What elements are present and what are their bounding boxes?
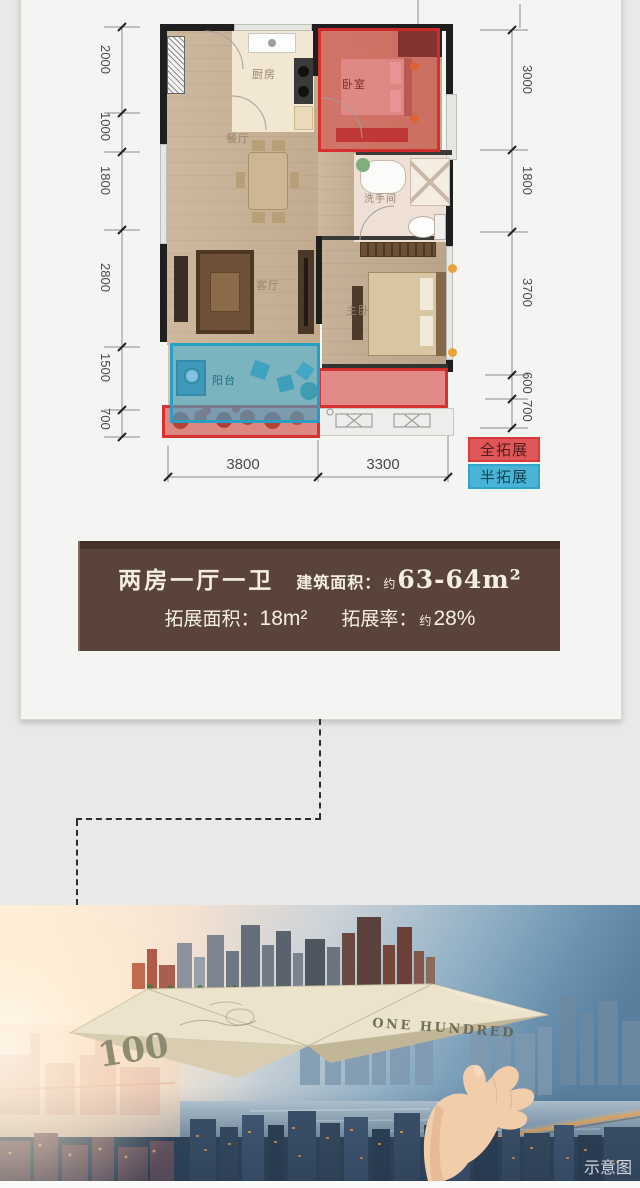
dim-label: 1800 <box>520 166 535 195</box>
dim-label: 600 <box>520 372 535 394</box>
dim-label: 1800 <box>98 166 113 195</box>
expand-rate-value: 28% <box>433 607 475 631</box>
info-line-1: 两房一厅一卫 建筑面积： 约 63-64m² <box>118 561 521 595</box>
dashed-connector-v1 <box>319 719 321 819</box>
dim-label: 3000 <box>520 65 535 94</box>
area-label: 建筑面积： <box>296 569 381 593</box>
dim-label: 3700 <box>520 278 535 307</box>
room-label-master: 主卧 <box>346 302 370 318</box>
dim-label: 700 <box>520 400 535 422</box>
dim-label: 1000 <box>98 112 113 141</box>
room-label-bedroom: 卧室 <box>342 76 366 92</box>
unit-type-title: 两房一厅一卫 <box>118 561 274 595</box>
dim-label: 2000 <box>98 45 113 74</box>
hero-photo-art: ONE HUNDRED 100 示意图 <box>0 905 640 1181</box>
dimension-graphics <box>0 0 640 500</box>
legend-full-expand: 全拓展 <box>468 437 540 462</box>
legend-half-expand: 半拓展 <box>468 464 540 489</box>
info-line-2: 拓展面积： 18m² 拓展率： 约 28% <box>165 604 476 631</box>
dashed-connector-v2 <box>76 820 78 905</box>
room-label-living: 客厅 <box>256 277 280 293</box>
dashed-connector-h <box>76 818 321 820</box>
flyer: 2000 1000 1800 2800 1500 700 3000 1800 3… <box>0 0 640 1188</box>
bottom-strip <box>0 1181 640 1188</box>
room-label-bathroom: 洗手间 <box>364 190 397 205</box>
hero-photo: ONE HUNDRED 100 示意图 <box>0 905 640 1181</box>
room-label-dining: 餐厅 <box>226 130 250 146</box>
dim-label: 2800 <box>98 263 113 292</box>
room-label-balcony: 阳台 <box>212 372 236 388</box>
dim-label: 700 <box>98 408 113 430</box>
watermark: 示意图 <box>584 1158 632 1177</box>
dim-label: 1500 <box>98 353 113 382</box>
area-value: 63-64m² <box>397 565 521 594</box>
dim-label: 3300 <box>348 456 418 473</box>
info-box: 两房一厅一卫 建筑面积： 约 63-64m² 拓展面积： 18m² 拓展率： 约… <box>78 541 560 651</box>
expand-rate-approx: 约 <box>419 612 431 629</box>
dim-label: 3800 <box>208 456 278 473</box>
expand-area-label: 拓展面积： <box>165 604 260 631</box>
room-label-kitchen: 厨房 <box>252 66 276 82</box>
expand-area-value: 18m² <box>260 607 308 631</box>
area-approx: 约 <box>383 575 395 592</box>
expand-rate-label: 拓展率： <box>341 604 417 631</box>
